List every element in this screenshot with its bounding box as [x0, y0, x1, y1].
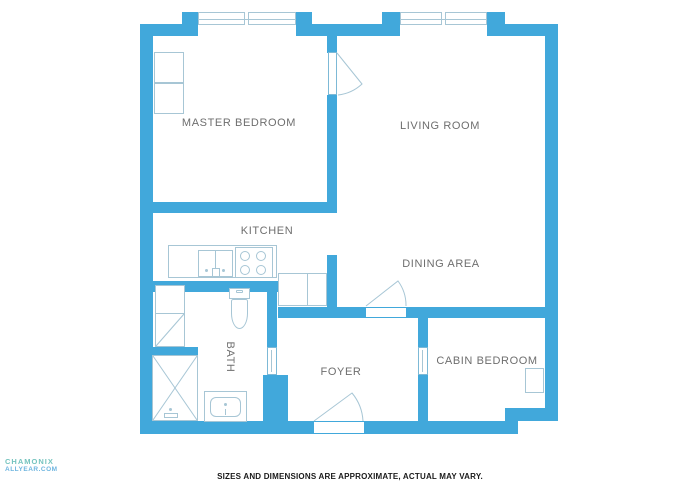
floor-plan: MASTER BEDROOM LIVING ROOM KITCHEN DININ… [0, 0, 700, 500]
label-living-room: LIVING ROOM [400, 120, 480, 132]
stove-burner-4 [256, 265, 266, 275]
master-closet-lower [154, 83, 184, 114]
kitchen-sink-tap-base [212, 268, 220, 277]
vanity-faucet [224, 403, 227, 406]
bay-window-master-sash-line [199, 19, 295, 20]
door-sill-dining [365, 307, 407, 318]
wall-foyer-cabin-upper [418, 318, 428, 347]
wall-foyer-top-left [278, 307, 365, 318]
wall-exterior-top-middle [312, 24, 382, 36]
cabin-closet [525, 368, 544, 393]
wall-exterior-top-left [140, 24, 182, 36]
pocket-door-cabin-panel [422, 350, 423, 372]
bay1-post-right [296, 12, 312, 36]
pocket-door-cabin [418, 347, 428, 375]
wall-exterior-bottom-right [363, 421, 518, 434]
bay2-post-left [382, 12, 400, 36]
label-master-bedroom: MASTER BEDROOM [182, 117, 296, 129]
wall-foyer-cabin-lower [418, 375, 428, 421]
door-sill-living [328, 52, 337, 95]
door-swing-dining [366, 281, 406, 306]
disclaimer-text: SIZES AND DIMENSIONS ARE APPROXIMATE, AC… [0, 472, 700, 481]
wall-bath-right-lower [263, 375, 288, 421]
bath-closet-shelf-line [156, 313, 184, 314]
wall-exterior-bottom-left [140, 421, 313, 434]
door-swing-entrance [314, 393, 363, 421]
bath-closet [155, 285, 185, 347]
shower-head-base [164, 413, 178, 418]
wall-shower-top [140, 347, 198, 355]
label-kitchen: KITCHEN [241, 225, 293, 237]
label-dining-area: DINING AREA [402, 258, 480, 270]
watermark-line1: CHAMONIX [5, 458, 58, 466]
bay2-post-right [487, 12, 505, 36]
wall-master-living [327, 95, 337, 202]
toilet-flush-button [236, 290, 243, 293]
lower-cabinet [278, 273, 327, 306]
wall-bath-right-upper [267, 292, 277, 347]
label-cabin-bedroom: CABIN BEDROOM [436, 355, 537, 367]
label-bath: BATH [224, 342, 236, 373]
toilet-bowl [231, 299, 248, 329]
wall-master-living-top-stub [327, 36, 337, 53]
kitchen-sink-faucet-right [222, 269, 225, 272]
shower-stall [152, 355, 198, 421]
kitchen-sink-faucet-left [205, 269, 208, 272]
stove-burner-3 [240, 265, 250, 275]
bay-window-living-sash-line [401, 19, 486, 20]
bay1-post-left [182, 12, 198, 36]
lower-cabinet-divider [307, 274, 308, 305]
master-closet-upper [154, 52, 184, 83]
wall-foyer-top-right [407, 307, 557, 318]
stove-burner-2 [256, 251, 266, 261]
wall-exterior-bottom-step [505, 408, 557, 421]
label-foyer: FOYER [321, 366, 362, 378]
door-sill-entrance [313, 421, 365, 434]
stove-burner-1 [240, 251, 250, 261]
vanity-drain-line [225, 409, 226, 415]
shower-head [169, 408, 172, 411]
pocket-door-bath-panel [271, 350, 272, 372]
door-swing-living [337, 53, 362, 95]
wall-master-bottom [153, 202, 337, 213]
wall-kitchen-dining-stub [327, 255, 337, 307]
pocket-door-bath [267, 347, 277, 375]
wall-exterior-right [545, 24, 558, 421]
